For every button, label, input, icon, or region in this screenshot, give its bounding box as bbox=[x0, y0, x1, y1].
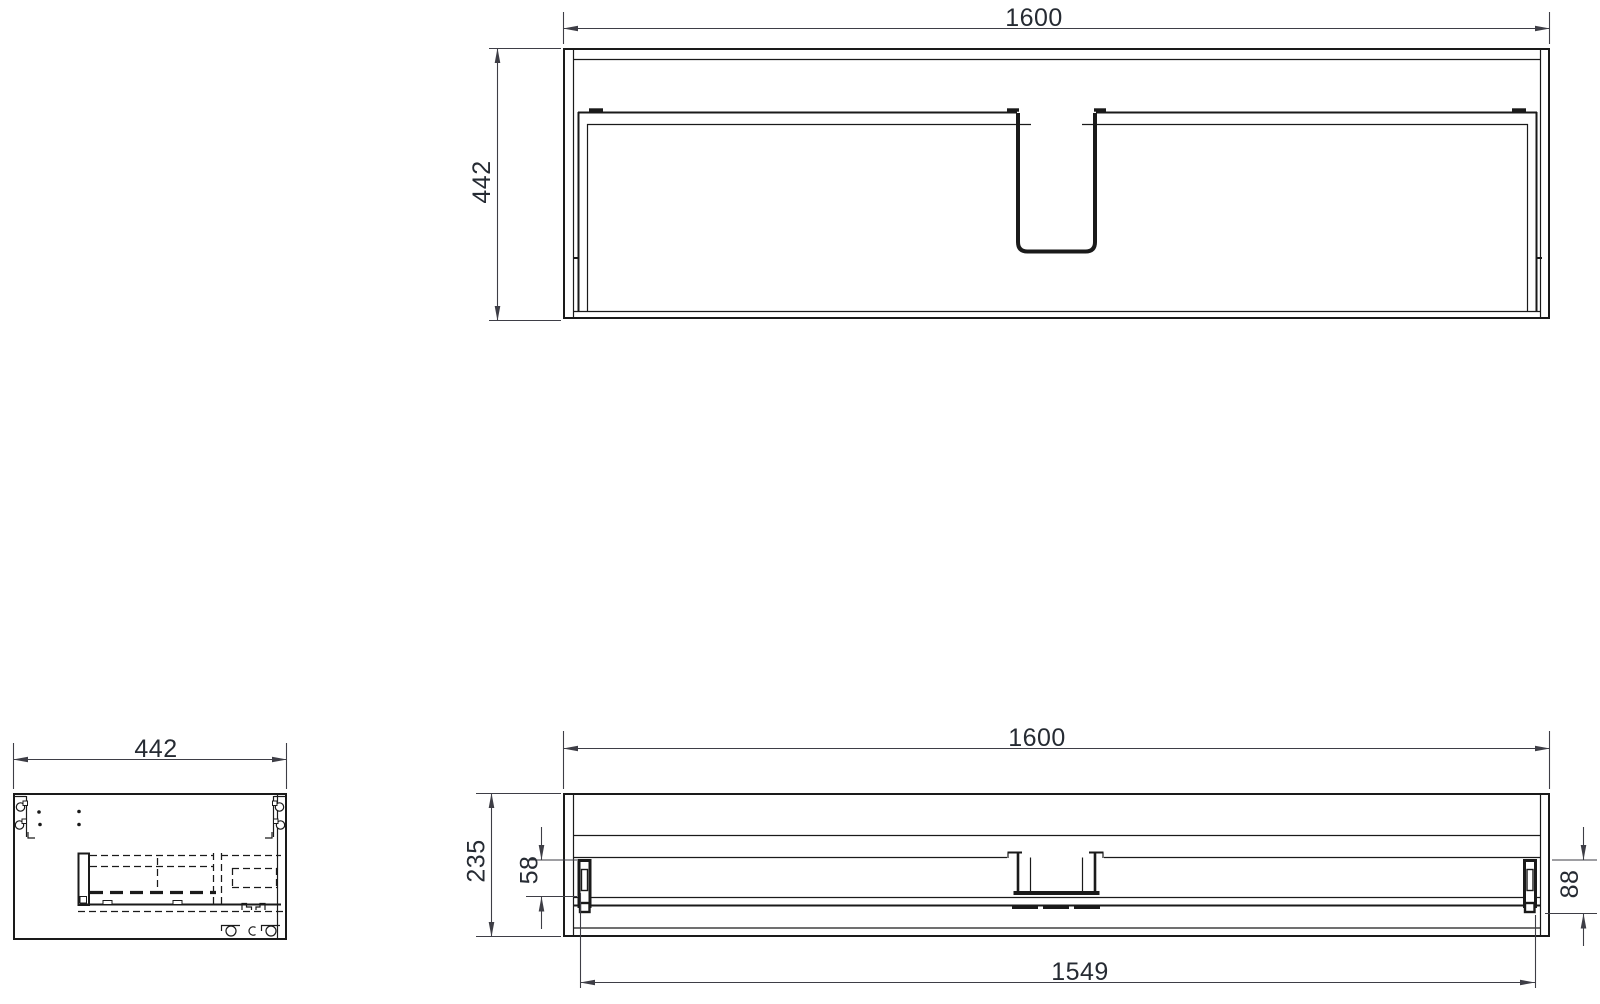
side-drill-dots bbox=[37, 810, 81, 827]
adjuster-foot-icon bbox=[266, 926, 276, 936]
plan-view bbox=[563, 48, 1550, 319]
technical-drawing-canvas: 1600 442 442 1600 235 bbox=[0, 0, 1600, 1004]
arrowhead-right bbox=[1535, 26, 1550, 32]
drill-dot bbox=[37, 810, 41, 814]
dimension-value: 442 bbox=[468, 160, 496, 203]
wall-bracket-left bbox=[14, 796, 35, 838]
arrowhead-right bbox=[1535, 746, 1550, 752]
dimension-value: 442 bbox=[134, 735, 177, 763]
bracket-lug bbox=[273, 801, 278, 806]
dimension-front-width: 1600 bbox=[563, 724, 1550, 789]
dimension-value: 1600 bbox=[1005, 4, 1063, 32]
dimension-value: 1549 bbox=[1051, 958, 1109, 986]
dimension-value: 58 bbox=[516, 856, 544, 885]
arrowhead-up bbox=[1581, 914, 1587, 929]
bracket-lug bbox=[22, 819, 27, 824]
clip-c-icon bbox=[249, 927, 256, 935]
bracket-lug bbox=[23, 801, 28, 806]
side-rear-hardware bbox=[222, 904, 281, 937]
arrowhead-left bbox=[13, 757, 28, 763]
dimension-value: 235 bbox=[463, 839, 491, 882]
dimension-plan-width: 1600 bbox=[563, 4, 1550, 44]
drawing-sheet: 1600 442 442 1600 235 bbox=[0, 0, 1600, 1004]
dimension-runner-height: 88 bbox=[1545, 827, 1597, 946]
drill-dot bbox=[77, 823, 81, 827]
dimension-drawer-front-offset: 58 bbox=[516, 827, 578, 929]
runner-slot bbox=[1527, 870, 1533, 891]
drawer-runner-right bbox=[1525, 861, 1536, 913]
arrowhead-right bbox=[1520, 980, 1535, 986]
dimension-value: 88 bbox=[1556, 870, 1584, 899]
rail-clip bbox=[173, 901, 182, 905]
arrowhead-up bbox=[489, 793, 495, 808]
bracket-corner-mark bbox=[265, 832, 272, 838]
arrowhead-left bbox=[563, 26, 578, 32]
side-view bbox=[13, 793, 287, 940]
arrowhead-right bbox=[272, 757, 287, 763]
arrowhead-left bbox=[563, 746, 578, 752]
dimension-value: 1600 bbox=[1008, 724, 1066, 752]
plan-siphon-cutout bbox=[1007, 110, 1106, 252]
plan-carcass-outline bbox=[563, 48, 1550, 319]
dimension-side-depth: 442 bbox=[13, 735, 287, 789]
front-siphon-recess bbox=[1008, 853, 1106, 908]
front-view bbox=[563, 793, 1550, 937]
arrowhead-up bbox=[539, 897, 545, 912]
wall-bracket-right bbox=[265, 796, 286, 838]
bracket-lug bbox=[274, 819, 279, 824]
siphon-cutout-u-shape bbox=[1018, 113, 1095, 252]
plan-drawer-cavity bbox=[573, 110, 1542, 311]
drill-dot bbox=[38, 823, 42, 827]
side-drawer-section bbox=[78, 853, 285, 912]
arrowhead-up bbox=[495, 48, 501, 63]
bracket-corner-mark bbox=[28, 832, 35, 838]
arrowhead-down bbox=[1581, 845, 1587, 860]
runner-foot bbox=[580, 903, 590, 912]
drawer-front-notch bbox=[80, 897, 87, 904]
dimension-front-height: 235 bbox=[463, 793, 562, 937]
front-outline bbox=[563, 793, 1550, 937]
hidden-rear-box bbox=[232, 868, 277, 888]
dimension-plan-depth: 442 bbox=[468, 48, 561, 321]
runner-slot bbox=[582, 870, 588, 891]
runner-foot bbox=[1525, 903, 1535, 912]
drill-dot bbox=[77, 810, 81, 814]
arrowhead-down bbox=[495, 306, 501, 321]
arrowhead-left bbox=[580, 980, 595, 986]
rail-clip bbox=[103, 901, 112, 905]
arrowhead-down bbox=[489, 922, 495, 937]
adjuster-foot-icon bbox=[226, 926, 236, 936]
